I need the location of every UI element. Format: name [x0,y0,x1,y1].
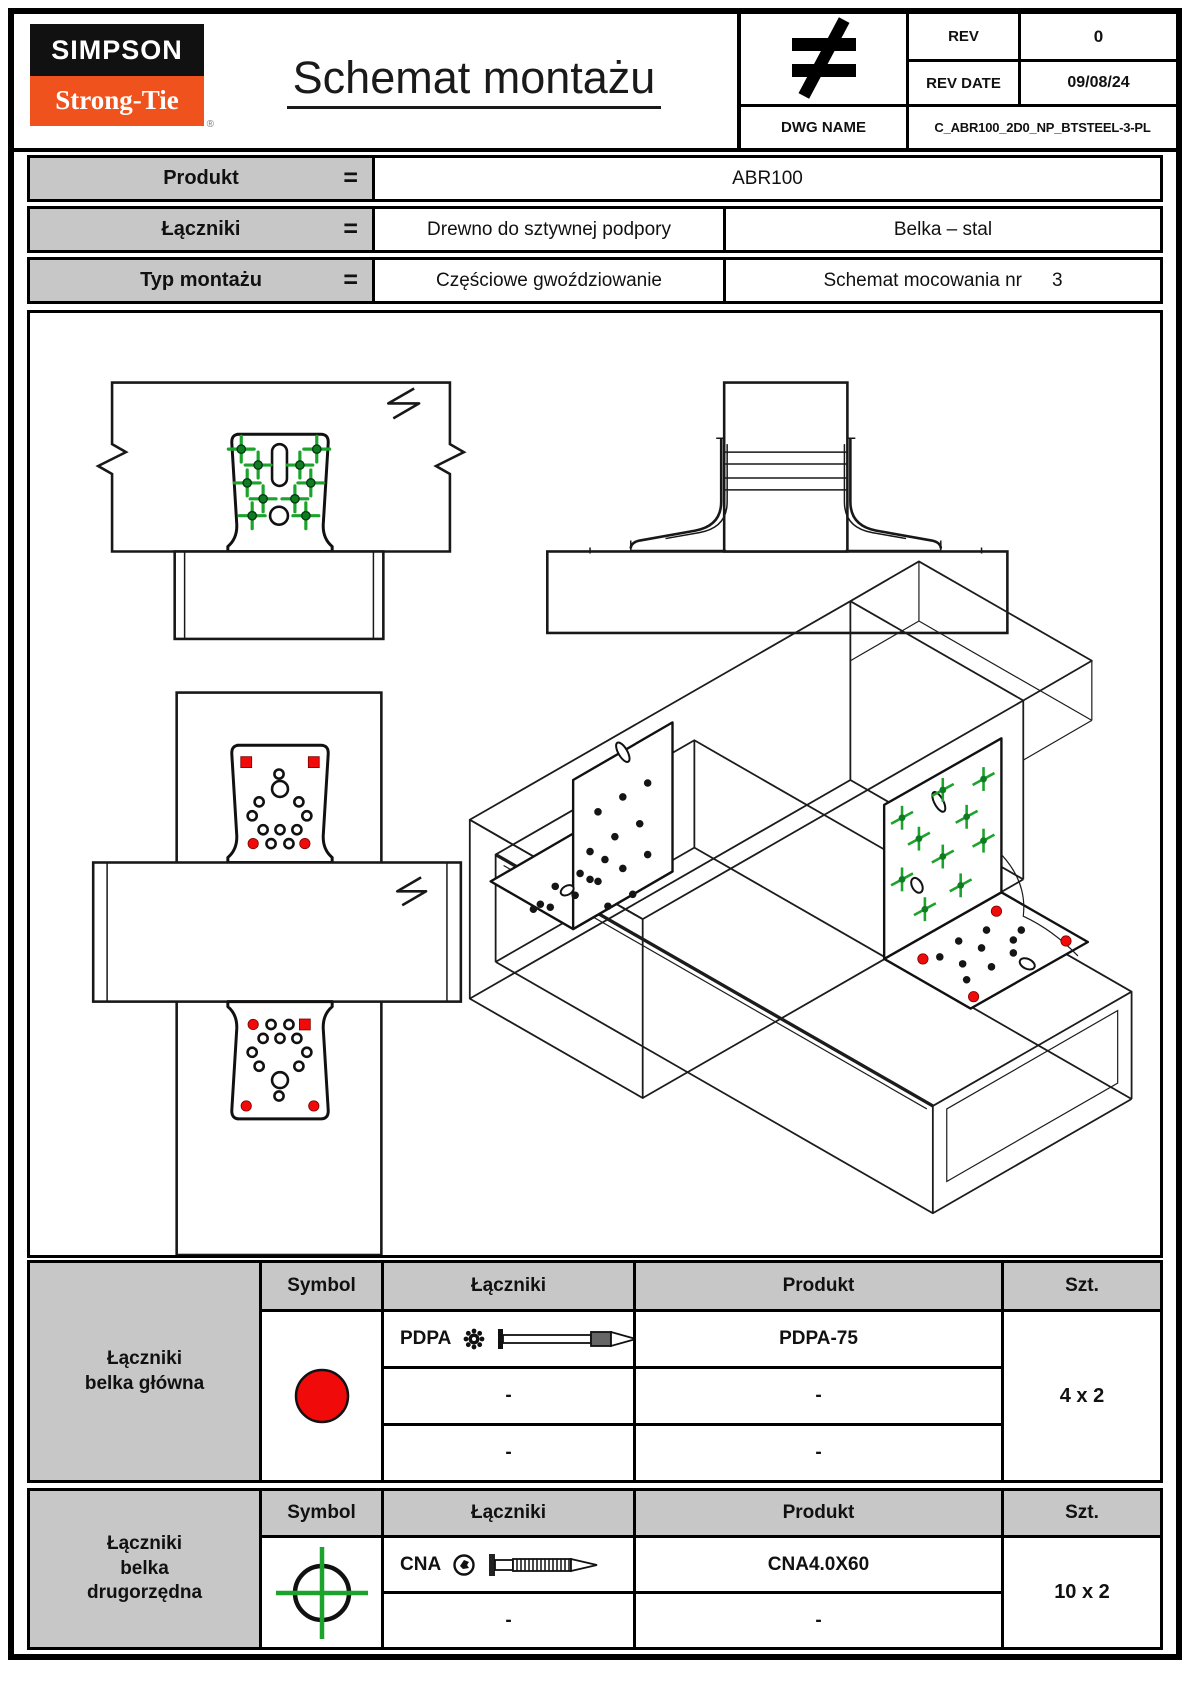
qty-header: Szt. [1001,1263,1160,1309]
qty-header: Szt. [1001,1491,1160,1535]
steel-beam-plan [93,863,461,1002]
qty-cell: 10 x 2 [1001,1535,1160,1647]
fasteners-value-left: Drewno do sztywnej podpory [375,209,726,250]
red-circle-icon [259,1309,381,1480]
equals-sign: = [343,266,358,295]
symbol-header: Symbol [259,1491,381,1535]
registered-mark: ® [207,119,214,130]
front-view [98,383,464,639]
equals-sign: = [343,164,358,193]
dwg-name-value: C_ABR100_2D0_NP_BTSTEEL-3-PL [909,104,1176,148]
plan-view [93,693,461,1255]
side-view [547,383,1007,633]
fastener-cell: - [381,1366,633,1423]
dwg-name-label: DWG NAME [741,104,909,148]
secondary-beam-group-label: Łączniki belka drugorzędna [30,1491,259,1647]
cna-logo-icon [451,1552,477,1578]
fastener-cell: PDPA [381,1309,633,1366]
logo-strongtie: Strong-Tie [30,76,204,126]
fasteners-label-cell: Łączniki = [30,209,375,250]
secondary-beam-fastener-table: Łączniki belka drugorzędna Symbol Łączni… [27,1488,1163,1650]
fasteners-row: Łączniki = Drewno do sztywnej podpory Be… [27,206,1163,253]
fasteners-header: Łączniki [381,1263,633,1309]
pdpa-pin-icon [496,1324,633,1354]
main-beam-fastener-table: Łączniki belka główna Symbol Łączniki Pr… [27,1260,1163,1483]
bracket-slot [272,444,287,486]
rev-date-value: 09/08/24 [1021,59,1176,104]
product-cell: - [633,1366,1001,1423]
torx-gear-icon [461,1326,485,1352]
rev-label: REV [909,14,1021,59]
simpson-strongtie-logo: SIMPSON Strong-Tie ® [30,24,204,126]
mounting-type-row: Typ montażu = Częściowe gwoździowanie Sc… [27,257,1163,304]
fasteners-header: Łączniki [381,1491,633,1535]
rev-value: 0 [1021,14,1176,59]
cna-nail-icon [487,1550,603,1580]
product-value: ABR100 [375,158,1160,199]
equals-sign: = [343,215,358,244]
assembly-drawing-area [27,310,1163,1258]
product-label-cell: Produkt = [30,158,375,199]
main-beam-group-label: Łączniki belka główna [30,1263,259,1480]
product-header: Produkt [633,1263,1001,1309]
fastener-cell: - [381,1591,633,1647]
not-equal-icon [741,14,909,104]
qty-cell: 4 x 2 [1001,1309,1160,1480]
logo-simpson: SIMPSON [30,24,204,76]
mounting-scheme-cell: Schemat mocowania nr 3 [726,260,1160,301]
steel-tube-section [175,551,384,638]
title-block: SIMPSON Strong-Tie ® Schemat montażu REV… [14,14,1176,152]
rev-date-label: REV DATE [909,59,1021,104]
symbol-header: Symbol [259,1263,381,1309]
mounting-scheme-number: 3 [1052,270,1063,292]
page-title: Schemat montażu [239,52,709,104]
bracket-hole [270,507,288,525]
isometric-view [470,561,1132,1213]
fastener-cell: CNA [381,1535,633,1591]
mounting-type-value-left: Częściowe gwoździowanie [375,260,726,301]
drawing-sheet: SIMPSON Strong-Tie ® Schemat montażu REV… [8,8,1182,1660]
fasteners-value-right: Belka – stal [726,209,1160,250]
product-cell: PDPA-75 [633,1309,1001,1366]
product-cell: CNA4.0X60 [633,1535,1001,1591]
assembly-drawing [30,313,1160,1255]
fastener-cell: - [381,1423,633,1480]
product-cell: - [633,1591,1001,1647]
green-crosshair-circle-icon [259,1535,381,1647]
wood-post [724,383,847,552]
product-header: Produkt [633,1491,1001,1535]
product-cell: - [633,1423,1001,1480]
mounting-type-label-cell: Typ montażu = [30,260,375,301]
revision-table: REV 0 REV DATE 09/08/24 DWG NAME C_ABR10… [737,14,1176,148]
steel-beam [547,551,1007,632]
product-row: Produkt = ABR100 [27,155,1163,202]
